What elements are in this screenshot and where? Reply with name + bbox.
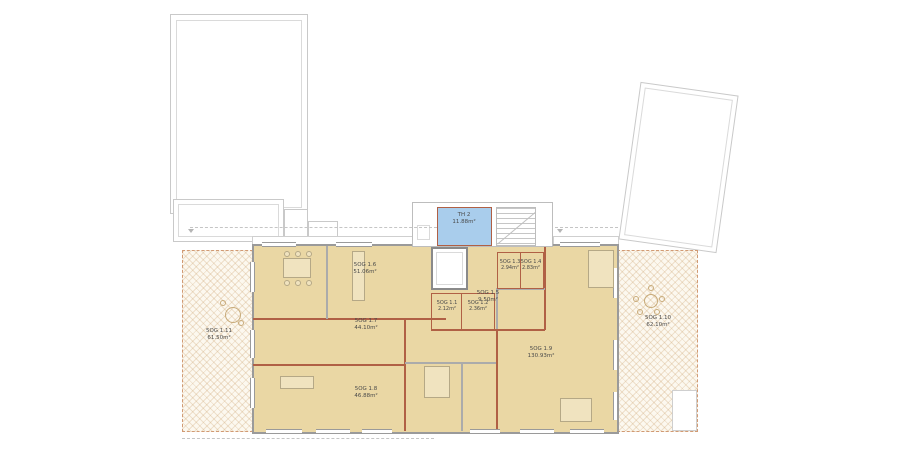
room-label-5og-1-10: 5OG 1.10 62.10m² [628,315,688,329]
window-marker [520,429,554,434]
window-marker [250,378,255,408]
room-area: 2.12m² [431,306,463,312]
window-marker [316,429,350,434]
room-area: 44.10m² [336,325,396,332]
terrace-chair [659,296,665,302]
terrace-right-notch [672,390,697,431]
window-marker [570,429,604,434]
terrace-chair [633,296,639,302]
wall-v-left-apartment-core [404,319,406,431]
window-marker [362,429,392,434]
elevator-shaft [431,247,468,290]
bed [424,366,450,398]
axis-arrow-left [188,229,194,233]
axis-dashed-line-right [545,227,618,228]
window-marker [613,340,618,370]
window-marker [470,429,500,434]
terrace-chair [238,320,244,326]
chair [295,280,301,286]
room-area: 61.50m² [189,335,249,342]
room-area: 46.88m² [336,393,396,400]
window-marker [613,392,618,420]
roof-outline-right [618,82,738,253]
room-label-5og-1-6: 5OG 1.6 51.06m² [335,262,395,276]
terrace-bottom-dashed-line [182,438,434,439]
window-marker [266,429,302,434]
roof-outline-left-inner [176,20,302,208]
chair [295,251,301,257]
floor-plan-canvas: TH 2 11.88m² 5OG 1.6 51.06m² 5OG 1.7 44.… [0,0,900,450]
window-marker [262,242,296,247]
stair-diagonal-line [497,208,536,244]
terrace-chair [648,285,654,291]
room-area: 2.83m² [515,265,547,271]
room-label-5og-1-8: 5OG 1.8 46.88m² [336,386,396,400]
elevator-inner [436,252,463,285]
room-label-5og-1-9: 5OG 1.9 130.93m² [511,346,571,360]
room-label-5og-1-4: 5OG 1.4 2.83m² [515,259,547,271]
room-area: 51.06m² [335,269,395,276]
chair [284,280,290,286]
kitchen-counter [588,250,614,288]
room-label-th2: TH 2 11.88m² [434,212,494,226]
terrace-chair [220,300,226,306]
staircase [496,207,536,246]
chair [284,251,290,257]
wall-v-bottom-center [461,364,463,431]
room-label-5og-1-11: 5OG 1.11 61.50m² [189,328,249,342]
axis-arrow-right [557,229,563,233]
chair [306,251,312,257]
terrace-table [644,294,658,308]
wall-h-between-1-7-and-1-8 [253,364,405,366]
window-marker [560,242,600,247]
wall-v-core-1-9 [496,330,498,431]
roof-outline-right-inner [624,88,733,248]
dining-table [283,258,311,278]
window-marker [250,262,255,292]
room-label-5og-1-1: 5OG 1.1 2.12m² [431,300,463,312]
room-area: 130.93m² [511,353,571,360]
axis-dashed-line-left [190,227,437,228]
sofa [280,376,314,389]
window-marker [336,242,372,247]
room-label-5og-1-7: 5OG 1.7 44.10m² [336,318,396,332]
wall-h-bottom-center [405,362,497,364]
window-marker [250,330,255,358]
room-area: 2.36m² [462,306,494,312]
chair [306,280,312,286]
room-area: 62.10m² [628,322,688,329]
wall-v-living-kitchen-1-6 [326,246,328,319]
room-area: 11.88m² [434,219,494,226]
bed [560,398,592,422]
room-label-5og-1-2: 5OG 1.2 2.36m² [462,300,494,312]
